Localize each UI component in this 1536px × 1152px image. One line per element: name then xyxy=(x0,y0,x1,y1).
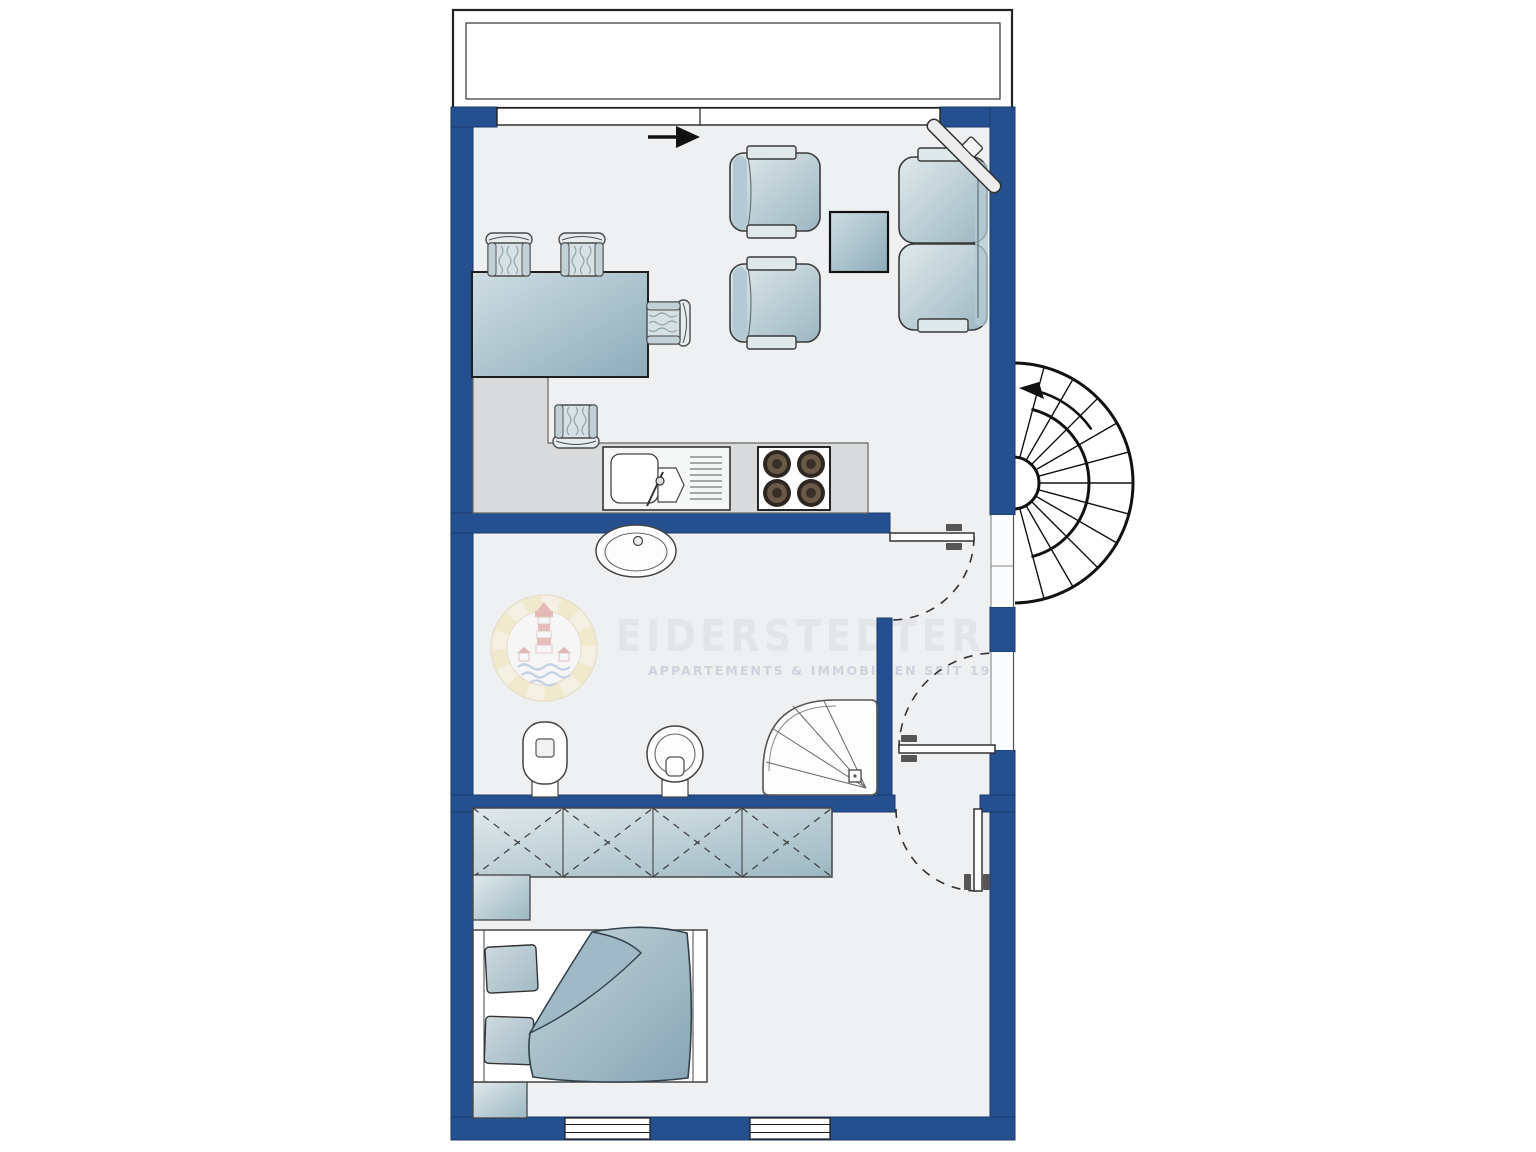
corner-shower xyxy=(763,700,877,795)
balcony xyxy=(453,10,1012,108)
bathroom xyxy=(523,525,877,797)
entry-door xyxy=(899,653,995,762)
bedroom-window-right xyxy=(750,1118,830,1139)
bathroom-right-wall xyxy=(877,618,892,797)
bidet xyxy=(523,722,567,797)
kitchen-bath-divider-wall xyxy=(451,513,890,533)
nightstand xyxy=(473,1082,527,1118)
kitchen-sink xyxy=(603,447,730,510)
dining-chair xyxy=(559,233,605,276)
bedroom xyxy=(473,808,832,1118)
living-room xyxy=(472,108,1012,448)
kitchen-hob xyxy=(758,447,830,510)
right-wall-corner-piece xyxy=(980,795,1015,812)
armchair xyxy=(730,257,820,349)
entrance-arrow-icon xyxy=(648,126,700,148)
armchair xyxy=(730,146,820,238)
bedroom-window-left xyxy=(565,1118,650,1139)
dining-chair xyxy=(647,300,690,346)
stair-access-opening xyxy=(990,515,1015,607)
coffee-table xyxy=(830,212,888,272)
bottom-exterior-wall xyxy=(451,1117,1015,1140)
pillow xyxy=(484,1016,534,1065)
living-room-window-band xyxy=(497,108,940,125)
dining-chair xyxy=(553,405,599,448)
wardrobe xyxy=(473,808,832,877)
washbasin xyxy=(596,525,676,577)
doors xyxy=(890,524,995,891)
floor-plan-drawing xyxy=(0,0,1536,1152)
top-left-wall-stub xyxy=(451,107,497,127)
toilet xyxy=(647,726,703,797)
nightstand xyxy=(473,875,530,920)
right-exterior-wall-lower xyxy=(990,812,1015,1140)
left-exterior-wall xyxy=(451,107,473,1140)
pillow xyxy=(485,945,538,994)
spiral-staircase xyxy=(1013,363,1133,603)
double-bed xyxy=(473,927,707,1082)
dining-chair xyxy=(486,233,532,276)
right-exterior-wall-upper xyxy=(990,107,1015,515)
kitchen xyxy=(473,377,868,513)
right-wall-below-entry xyxy=(990,750,1015,795)
floor-plan-canvas: EIDERSTEDTER APPARTEMENTS & IMMOBILIEN S… xyxy=(0,0,1536,1152)
dining-table xyxy=(472,272,648,377)
entry-door-opening xyxy=(990,652,1015,750)
bedroom-door xyxy=(896,809,990,891)
right-wall-between-openings xyxy=(990,607,1015,652)
bathroom-door xyxy=(890,524,974,620)
